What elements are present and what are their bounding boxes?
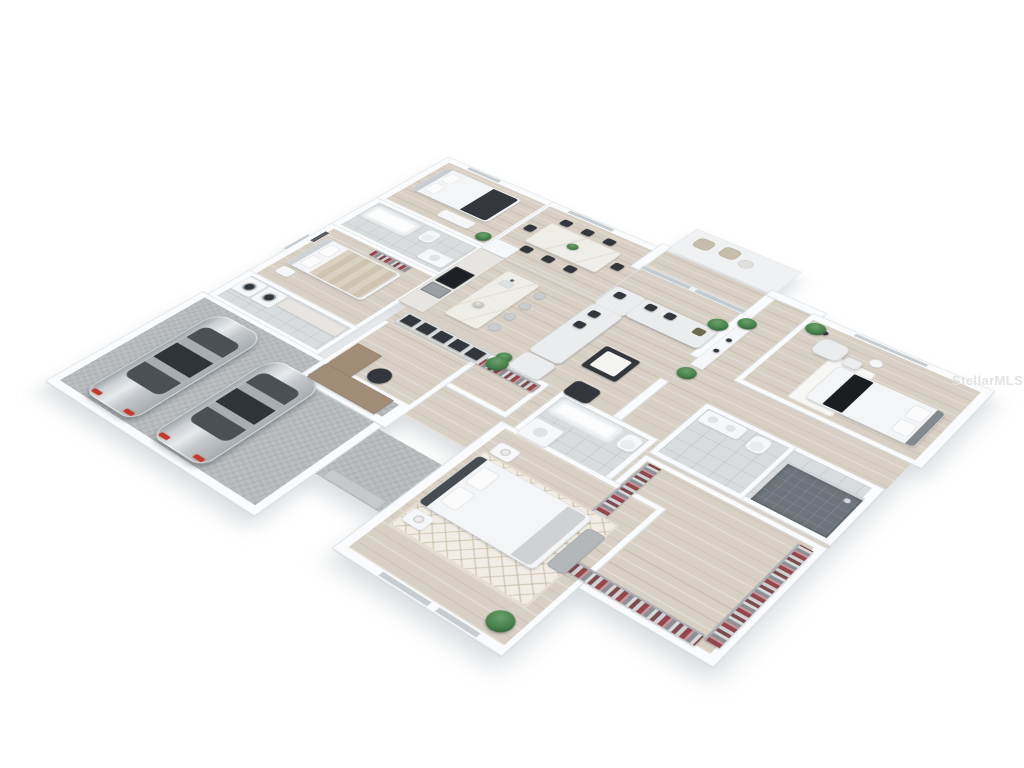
taillight <box>158 432 171 440</box>
sink-basin <box>723 424 738 433</box>
table-lamp <box>411 514 427 525</box>
coffee-table-top <box>589 351 632 377</box>
floor-plan <box>27 147 994 763</box>
taillight <box>123 408 136 416</box>
sink-basin <box>530 426 551 439</box>
bed-runner <box>822 374 874 413</box>
taillight <box>192 454 205 463</box>
washer-door <box>237 280 262 294</box>
isometric-scene <box>0 0 1024 768</box>
floor-plan-stage: StellarMLS <box>0 0 1024 768</box>
sink-basin <box>706 415 721 424</box>
watermark: StellarMLS <box>952 373 1023 388</box>
dryer-door <box>257 290 282 304</box>
sink-basin <box>427 254 443 263</box>
table-lamp <box>498 447 513 457</box>
taillight <box>91 388 103 396</box>
